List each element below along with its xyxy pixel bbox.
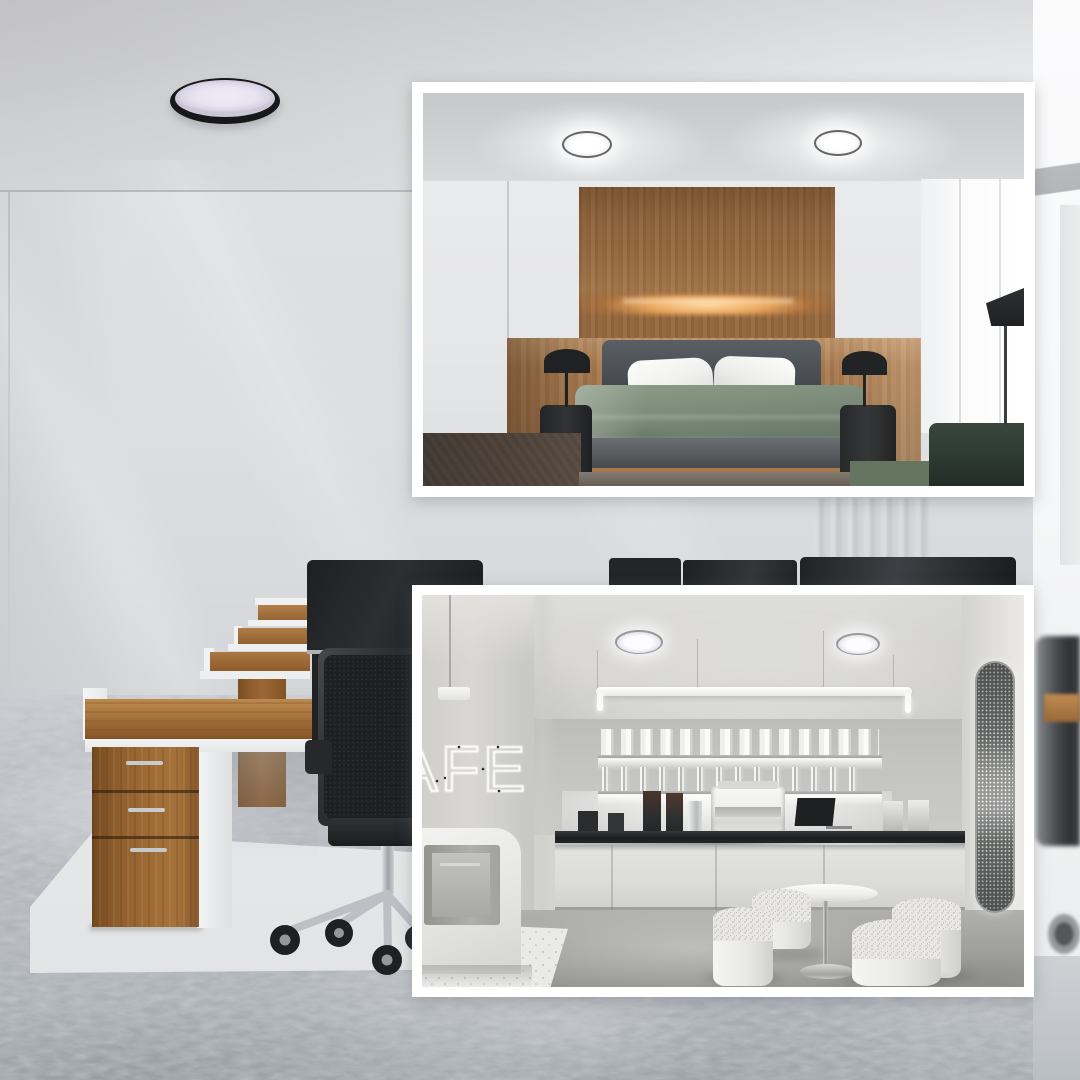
svg-text:AFE: AFE [422,733,528,805]
